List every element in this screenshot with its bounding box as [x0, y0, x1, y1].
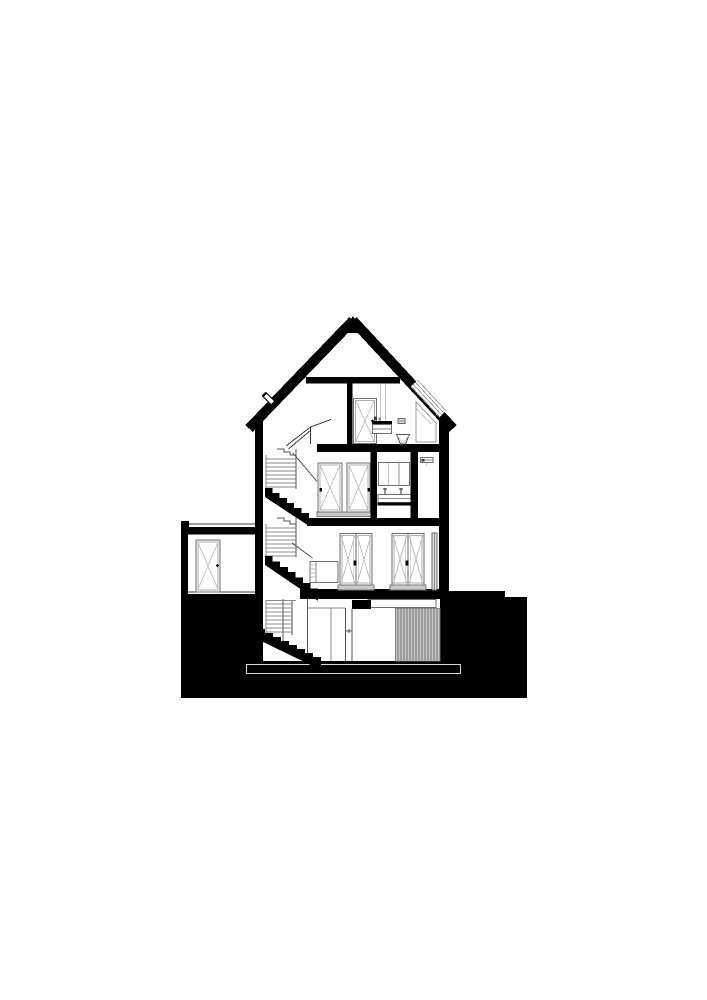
gf-fd2-threshold [390, 585, 426, 590]
gf-french-door-pair-east [390, 534, 426, 591]
gf-fd2-handle [406, 561, 409, 566]
annex-roof-slab [181, 527, 257, 535]
ground-floor-slab [300, 589, 449, 599]
second-floor-slab [307, 518, 449, 526]
right-wall [439, 420, 449, 661]
gf-french-door-pair-west [338, 534, 374, 591]
basement-level [257, 599, 440, 670]
washbasin-tap-1 [374, 417, 377, 421]
gf-sideboard [310, 562, 338, 583]
attic-floor-slab [317, 444, 449, 452]
sf-mirror-cabinet [379, 463, 410, 486]
sf-vanity-base [378, 503, 415, 506]
attic-flush-panel [398, 419, 405, 424]
annex [181, 521, 258, 595]
sf-mirror-frame [379, 463, 410, 486]
sf-shelf-dash [422, 459, 425, 462]
basement-door-lintel [352, 600, 371, 609]
gf-fd1-handle [354, 561, 357, 566]
basement-ceiling-beam [368, 600, 436, 608]
page [0, 0, 707, 1000]
washbasin-counter [372, 421, 392, 425]
gf-side-window [432, 533, 437, 590]
annex-door-handle [216, 564, 219, 567]
section-drawing [0, 0, 707, 1000]
annex-parapet-cap [181, 521, 189, 527]
ground-right-block [449, 591, 527, 698]
gf-fd1-threshold [338, 585, 374, 590]
left-wall [255, 420, 263, 661]
sf-door-right-handle [368, 488, 371, 492]
sf-door-left [318, 463, 342, 512]
basement-hatched-wall [395, 608, 440, 661]
sf-door-left-handle [320, 488, 323, 492]
sf-door-sill [317, 512, 372, 517]
washbasin-tap-2 [379, 418, 382, 421]
sf-bathroom-wall [411, 452, 419, 518]
annex-door [196, 540, 220, 592]
sf-door-right [347, 463, 370, 512]
sf-partition-wall [371, 452, 378, 518]
annex-left-wall [181, 527, 188, 595]
collar-tie [306, 377, 400, 384]
attic-partition-wall [347, 383, 353, 444]
